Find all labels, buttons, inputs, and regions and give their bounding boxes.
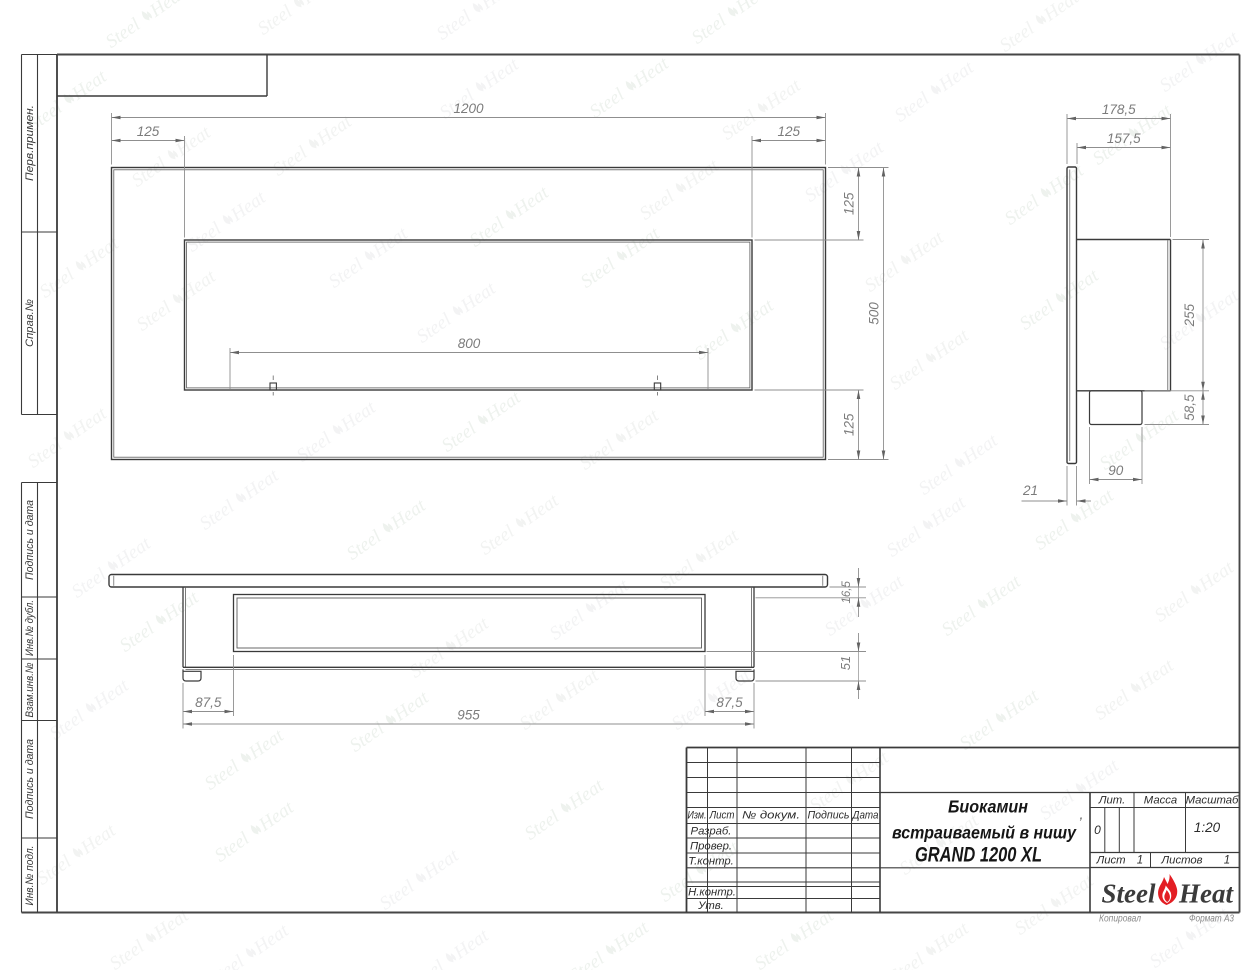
svg-text:125: 125: [137, 124, 160, 139]
svg-text:встраиваемый в нишу: встраиваемый в нишу: [892, 823, 1077, 843]
svg-text:Н.контр.: Н.контр.: [688, 887, 736, 899]
svg-text:90: 90: [1108, 463, 1124, 478]
svg-text:Копировал: Копировал: [1099, 914, 1141, 925]
svg-text:Утв.: Утв.: [697, 900, 724, 912]
svg-text:Формат А3: Формат А3: [1189, 914, 1234, 925]
svg-text:955: 955: [457, 708, 480, 723]
svg-text:178,5: 178,5: [1102, 102, 1136, 117]
svg-text:21: 21: [1022, 483, 1038, 498]
svg-text:Инв.№ подл.: Инв.№ подл.: [24, 846, 36, 906]
svg-text:Лит.: Лит.: [1098, 795, 1125, 807]
svg-text:Масса: Масса: [1144, 795, 1177, 807]
svg-text:Steel: Steel: [1102, 879, 1156, 909]
svg-text:1: 1: [1224, 855, 1230, 867]
svg-text:Подпись и дата: Подпись и дата: [24, 500, 36, 580]
svg-text:125: 125: [842, 192, 857, 215]
svg-text:Взам.инв.№: Взам.инв.№: [24, 662, 36, 717]
svg-text:Дата: Дата: [852, 810, 879, 822]
svg-text:Масштаб: Масштаб: [1186, 795, 1239, 807]
svg-text:№ докум.: № докум.: [742, 810, 800, 822]
svg-text:Лист: Лист: [709, 810, 735, 822]
svg-text:157,5: 157,5: [1107, 131, 1141, 146]
svg-text:Инв.№ дубл.: Инв.№ дубл.: [24, 600, 36, 656]
svg-text:Разраб.: Разраб.: [691, 826, 732, 838]
svg-text:500: 500: [867, 302, 882, 325]
svg-text:1: 1: [1137, 855, 1143, 867]
svg-text:87,5: 87,5: [716, 695, 743, 710]
svg-text:Лист: Лист: [1095, 855, 1125, 867]
svg-text:Листов: Листов: [1160, 855, 1202, 867]
svg-text:Перв.примен.: Перв.примен.: [24, 105, 36, 181]
svg-text:Изм.: Изм.: [688, 810, 707, 822]
svg-text:Подпись и дата: Подпись и дата: [24, 739, 36, 819]
svg-text:Т.контр.: Т.контр.: [688, 856, 734, 868]
svg-text:255: 255: [1182, 303, 1197, 327]
svg-text:58,5: 58,5: [1182, 394, 1197, 421]
svg-text:Подпись: Подпись: [808, 810, 850, 822]
svg-text:125: 125: [777, 124, 800, 139]
svg-text:1200: 1200: [453, 101, 484, 116]
svg-text:16,5: 16,5: [841, 581, 853, 604]
svg-text:Провер.: Провер.: [690, 841, 732, 853]
svg-text:1:20: 1:20: [1194, 820, 1221, 835]
svg-text:GRAND 1200 XL: GRAND 1200 XL: [915, 844, 1042, 867]
svg-text:800: 800: [458, 336, 481, 351]
svg-text:Биокамин: Биокамин: [948, 797, 1028, 817]
svg-text:0: 0: [1094, 823, 1101, 837]
svg-text:125: 125: [842, 413, 857, 436]
svg-text:51: 51: [838, 656, 853, 670]
svg-text:Справ.№: Справ.№: [24, 299, 36, 347]
svg-text:87,5: 87,5: [195, 695, 222, 710]
svg-text:Heat: Heat: [1178, 879, 1234, 909]
